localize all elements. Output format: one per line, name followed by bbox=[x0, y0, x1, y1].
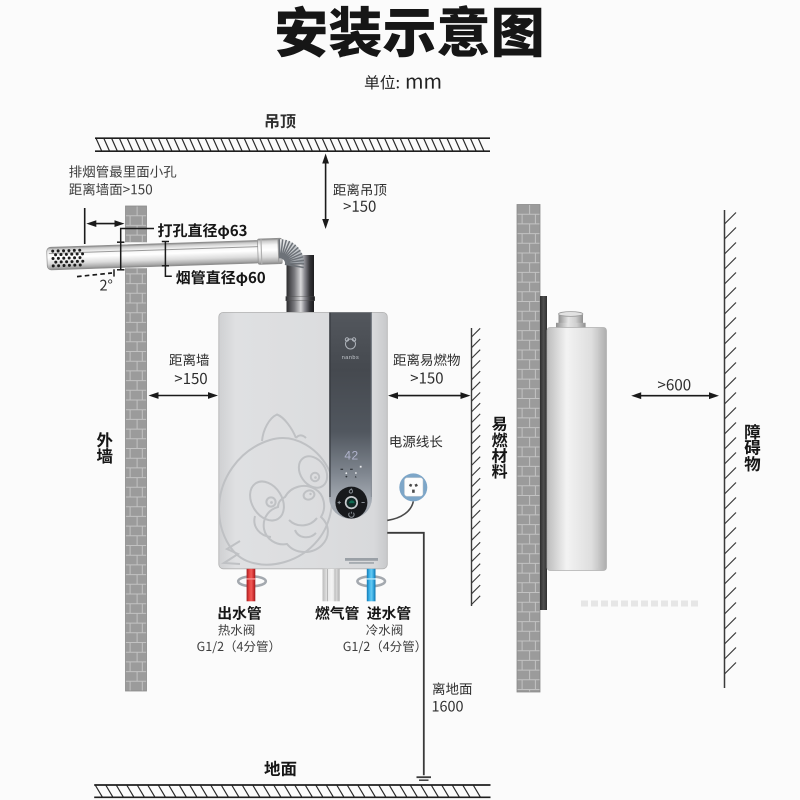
svg-text:nanbs: nanbs bbox=[342, 355, 360, 361]
svg-text:42: 42 bbox=[344, 449, 358, 463]
